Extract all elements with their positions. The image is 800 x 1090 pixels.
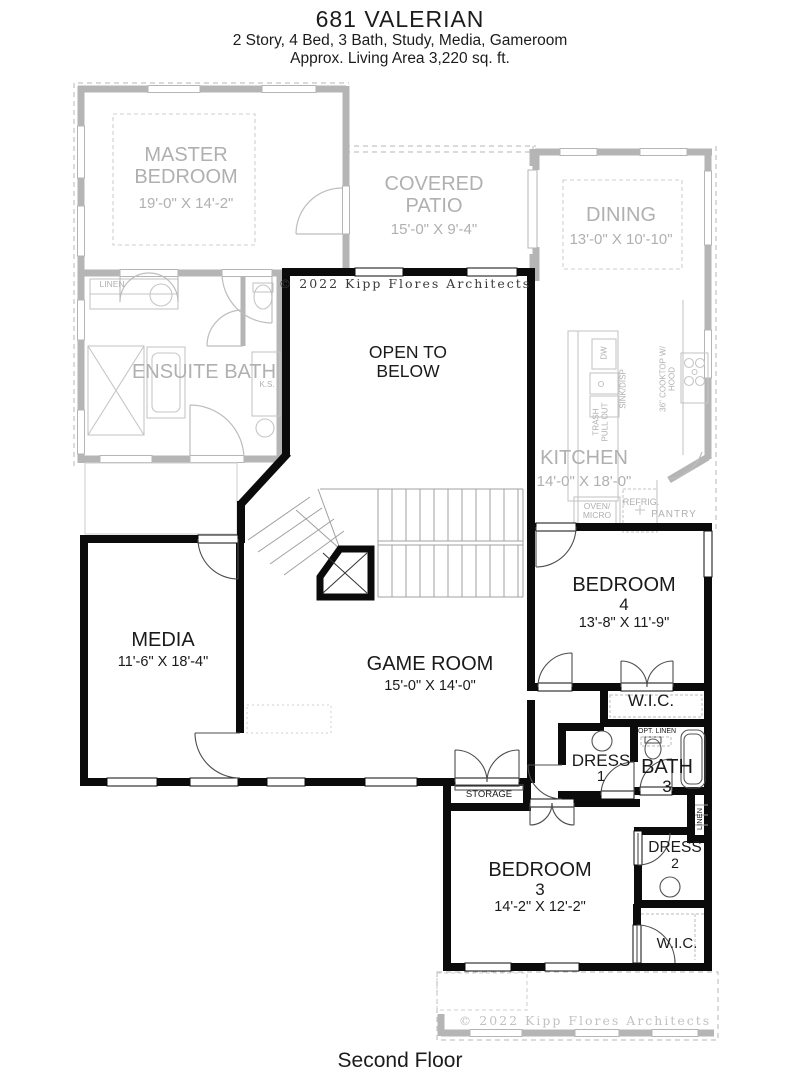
label-linen-second-floor: LINEN bbox=[696, 808, 704, 830]
plan-title: 681 VALERIAN bbox=[316, 6, 485, 33]
room-dims-covered-patio: 15'-0" X 9'-4" bbox=[391, 222, 477, 238]
room-dims-bedroom-4: 13'-8" X 11'-9" bbox=[579, 616, 670, 632]
room-label-dining: DINING bbox=[586, 205, 656, 227]
room-number-bath-3: 3 bbox=[662, 778, 671, 796]
room-number-bedroom-3: 3 bbox=[535, 881, 544, 899]
label-pantry: PANTRY bbox=[651, 510, 697, 521]
label-ks: K.S. bbox=[259, 381, 274, 390]
room-dims-master-bedroom: 19'-0" X 14'-2" bbox=[139, 196, 234, 212]
room-dims-bedroom-3: 14'-2" X 12'-2" bbox=[494, 900, 586, 916]
room-label-bath-3: BATH bbox=[641, 757, 693, 779]
label-dw: DW bbox=[601, 346, 610, 359]
room-label-bedroom-3: BEDROOM bbox=[488, 860, 591, 882]
room-label-game-room: GAME ROOM bbox=[367, 654, 494, 676]
label-refrig: REFRIG. bbox=[623, 498, 660, 508]
room-number-dress-2: 2 bbox=[671, 856, 679, 871]
label-linen-first-floor: LINEN bbox=[99, 280, 124, 289]
label-cooktop: 36" COOKTOP W/ HOOD bbox=[659, 346, 676, 412]
floor-plan-page: 681 VALERIAN 2 Story, 4 Bed, 3 Bath, Stu… bbox=[0, 0, 800, 1090]
floor-name: Second Floor bbox=[338, 1049, 463, 1073]
room-label-wic-bedroom4: W.I.C. bbox=[628, 692, 674, 710]
room-label-open-to-below: OPEN TO BELOW bbox=[358, 343, 458, 381]
plan-area: Approx. Living Area 3,220 sq. ft. bbox=[290, 50, 510, 68]
room-label-master-bedroom: MASTER BEDROOM bbox=[101, 145, 271, 188]
room-number-dress-1: 1 bbox=[597, 769, 605, 785]
plan-subtitle: 2 Story, 4 Bed, 3 Bath, Study, Media, Ga… bbox=[233, 32, 568, 50]
room-dims-media: 11'-6" X 18'-4" bbox=[118, 655, 209, 671]
room-label-wic-bedroom3: W.I.C. bbox=[657, 936, 698, 952]
copyright-bottom: © 2022 Kipp Flores Architects bbox=[459, 1014, 711, 1028]
room-label-covered-patio: COVERED PATIO bbox=[364, 174, 504, 217]
room-label-bedroom-4: BEDROOM bbox=[572, 575, 675, 597]
room-dims-kitchen: 14'-0" X 18'-0" bbox=[537, 474, 632, 490]
label-trash-pull-out: TRASH PULL OUT bbox=[592, 399, 609, 445]
label-opt-linen: OPT. LINEN bbox=[638, 728, 676, 736]
label-oven-micro: OVEN/ MICRO bbox=[576, 502, 618, 520]
label-sink-disp: SINK/DISP bbox=[620, 369, 629, 409]
room-dims-game-room: 15'-0" X 14'-0" bbox=[384, 679, 476, 695]
stairs bbox=[248, 489, 523, 597]
room-dims-dining: 13'-0" X 10'-10" bbox=[569, 232, 672, 248]
room-number-bedroom-4: 4 bbox=[619, 596, 628, 614]
label-storage: STORAGE bbox=[466, 790, 512, 800]
copyright-top: © 2022 Kipp Flores Architects bbox=[279, 277, 531, 291]
room-label-kitchen: KITCHEN bbox=[540, 448, 628, 470]
first-floor-fixtures bbox=[85, 114, 708, 1010]
room-label-media: MEDIA bbox=[131, 630, 194, 652]
